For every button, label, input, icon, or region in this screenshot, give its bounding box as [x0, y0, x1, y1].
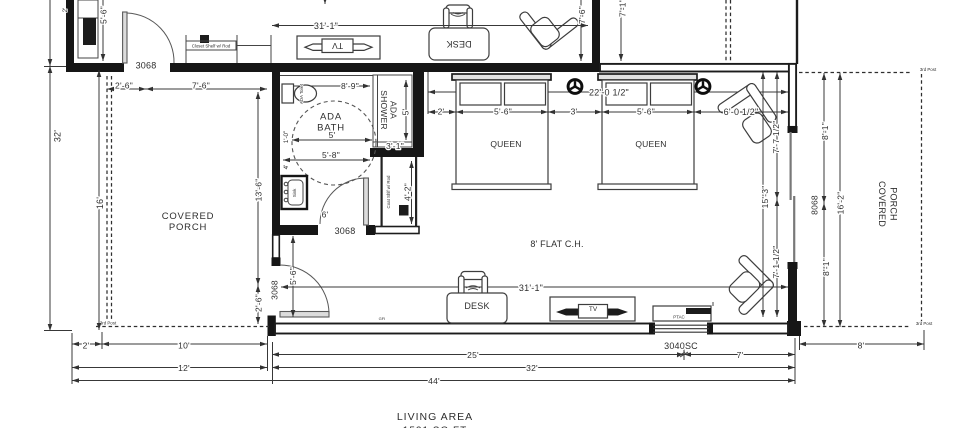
- svg-text:SHOWER: SHOWER: [379, 90, 389, 129]
- svg-text:Sink: Sink: [292, 188, 297, 197]
- svg-text:COVERED: COVERED: [162, 211, 215, 222]
- svg-text:Coat Shlf w/ Rod: Coat Shlf w/ Rod: [386, 175, 391, 209]
- svg-text:QUEEN: QUEEN: [490, 139, 521, 149]
- svg-text:LIVING AREA: LIVING AREA: [397, 411, 473, 423]
- svg-text:7'-7 1/2": 7'-7 1/2": [771, 121, 781, 154]
- svg-text:ADA Toilet: ADA Toilet: [299, 83, 304, 104]
- svg-text:3': 3': [571, 107, 578, 117]
- svg-text:32': 32': [526, 363, 538, 373]
- svg-text:8': 8': [858, 341, 865, 351]
- svg-text:13'-6": 13'-6": [254, 179, 264, 202]
- svg-text:12': 12': [178, 363, 190, 373]
- svg-text:31'-1": 31'-1": [314, 21, 338, 31]
- svg-text:7'-6": 7'-6": [192, 81, 210, 91]
- svg-text:16'-2": 16'-2": [836, 192, 846, 215]
- svg-text:8'-9": 8'-9": [341, 81, 359, 91]
- svg-text:PORCH: PORCH: [169, 222, 207, 233]
- svg-text:QUEEN: QUEEN: [635, 139, 666, 149]
- svg-text:3040SC: 3040SC: [664, 341, 698, 351]
- svg-text:10': 10': [178, 341, 190, 351]
- svg-text:DESK: DESK: [464, 301, 489, 311]
- svg-text:2': 2': [62, 8, 69, 13]
- svg-text:2'-6": 2'-6": [115, 81, 133, 91]
- svg-text:32': 32': [53, 130, 63, 142]
- svg-text:31'-1": 31'-1": [519, 283, 543, 293]
- svg-text:2'-6": 2'-6": [254, 294, 264, 312]
- svg-text:5'-6": 5'-6": [99, 6, 109, 24]
- svg-text:3rd Post: 3rd Post: [100, 321, 117, 326]
- svg-text:3068: 3068: [270, 280, 280, 300]
- svg-text:5'-6": 5'-6": [637, 107, 655, 117]
- svg-text:4'-2": 4'-2": [403, 183, 413, 201]
- svg-text:15'-3": 15'-3": [760, 186, 770, 209]
- svg-text:7'-1 1/2": 7'-1 1/2": [771, 246, 781, 279]
- svg-text:7': 7': [737, 350, 744, 360]
- svg-text:TV: TV: [589, 306, 598, 313]
- svg-text:8'-1": 8'-1": [821, 258, 831, 276]
- svg-text:ADA: ADA: [389, 101, 399, 119]
- svg-text:5'-6": 5'-6": [288, 267, 298, 285]
- svg-text:5': 5': [329, 130, 336, 140]
- svg-text:6': 6': [322, 210, 329, 220]
- svg-text:DESK: DESK: [446, 39, 471, 49]
- svg-text:5'-6": 5'-6": [494, 107, 512, 117]
- svg-text:3068: 3068: [335, 226, 356, 236]
- svg-text:TV: TV: [332, 41, 343, 51]
- svg-text:3'-1": 3'-1": [386, 141, 404, 151]
- svg-text:1'-0": 1'-0": [283, 131, 290, 144]
- svg-text:3rd Post: 3rd Post: [920, 67, 937, 72]
- svg-text:COVERED: COVERED: [877, 181, 887, 227]
- svg-text:4': 4': [283, 165, 290, 170]
- svg-text:22'-0 1/2": 22'-0 1/2": [589, 88, 629, 98]
- svg-text:ADA: ADA: [320, 112, 342, 123]
- svg-text:5': 5': [401, 108, 411, 115]
- svg-text:PORCH: PORCH: [889, 187, 899, 221]
- svg-text:8068: 8068: [810, 195, 820, 215]
- svg-text:7'-1": 7'-1": [618, 0, 628, 17]
- svg-text:2': 2': [83, 341, 90, 351]
- svg-text:6'-0 1/2": 6'-0 1/2": [724, 107, 759, 117]
- svg-text:GFI: GFI: [379, 316, 386, 321]
- svg-text:16': 16': [95, 197, 105, 209]
- svg-text:5'-8": 5'-8": [322, 150, 340, 160]
- svg-text:8' FLAT C.H.: 8' FLAT C.H.: [530, 239, 583, 249]
- svg-text:PTAC: PTAC: [673, 315, 684, 320]
- svg-text:44': 44': [428, 376, 440, 386]
- svg-text:25': 25': [467, 350, 479, 360]
- svg-text:7'-6": 7'-6": [577, 6, 587, 24]
- svg-text:3rd Post: 3rd Post: [916, 321, 933, 326]
- svg-text:8'-1": 8'-1": [820, 122, 830, 140]
- svg-text:Closet Shelf w/ Rod: Closet Shelf w/ Rod: [192, 44, 231, 49]
- svg-text:3068: 3068: [136, 61, 157, 71]
- svg-text:2': 2': [438, 107, 445, 117]
